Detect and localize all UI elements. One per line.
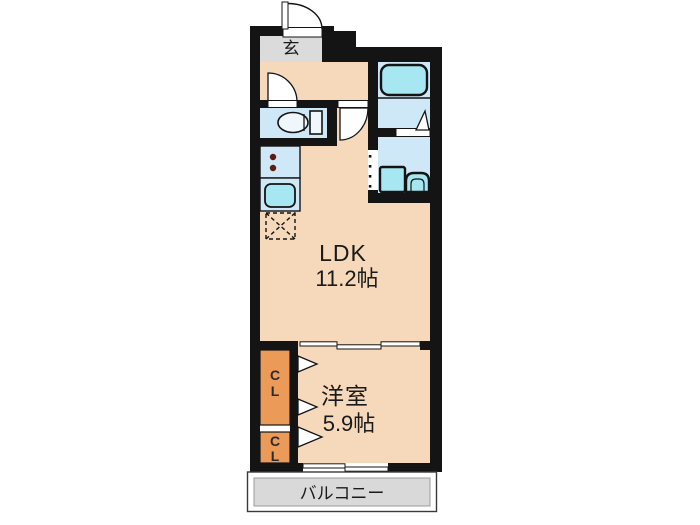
entrance-label: 玄 [283, 39, 300, 58]
wall-segment [368, 128, 398, 137]
sliding-door-panel [300, 342, 337, 346]
washing-machine-pan-icon [380, 167, 405, 192]
folding-door-mark [369, 155, 372, 158]
bathtub-icon [381, 65, 427, 95]
wall-segment [322, 26, 334, 62]
stove-burner-icon [270, 154, 276, 160]
entrance-door-leaf [282, 2, 288, 29]
floor-plan-page: 玄 LDK 11.2帖 洋室 5.9帖 バルコニー C L C L [0, 0, 700, 525]
ldk-area-label: 11.2帖 [315, 266, 378, 291]
wall-segment [420, 341, 442, 350]
folding-door-mark [369, 185, 372, 188]
wall-segment [260, 100, 268, 108]
wash-basin-icon [406, 173, 429, 192]
wall-segment [388, 463, 442, 472]
sliding-door-panel [337, 345, 381, 349]
bedroom-area-label: 5.9帖 [323, 411, 376, 436]
wall-segment [368, 193, 442, 203]
balcony-label: バルコニー [300, 484, 385, 503]
toilet-tank [310, 111, 322, 134]
floor-plan: 玄 LDK 11.2帖 洋室 5.9帖 バルコニー C L C L [0, 0, 700, 525]
window-panel [345, 467, 388, 471]
ldk-label: LDK [319, 240, 367, 266]
toilet-door-leaf [268, 101, 297, 108]
kitchen-sink-icon [265, 184, 295, 207]
window-panel [303, 464, 345, 468]
entrance-threshold [283, 28, 322, 38]
sliding-door-panel [381, 342, 420, 346]
folding-door-mark [369, 165, 372, 168]
bedroom-label: 洋室 [321, 383, 369, 409]
closet-upper-label: L [271, 383, 280, 399]
closet-lower-label: C [270, 433, 280, 449]
wall-segment [334, 47, 442, 62]
stove-burner-icon [270, 165, 276, 171]
wall-segment [250, 26, 283, 36]
wall-segment [250, 463, 303, 472]
wall-segment [250, 26, 260, 472]
wall-segment [290, 341, 298, 463]
closet-lower-label: L [271, 448, 280, 464]
closet-upper-label: C [270, 367, 280, 383]
wall-segment [250, 138, 337, 146]
wall-segment [430, 47, 442, 472]
kitchen-stove [260, 146, 300, 178]
hall-door-leaf [338, 101, 368, 108]
folding-door-mark [369, 175, 372, 178]
